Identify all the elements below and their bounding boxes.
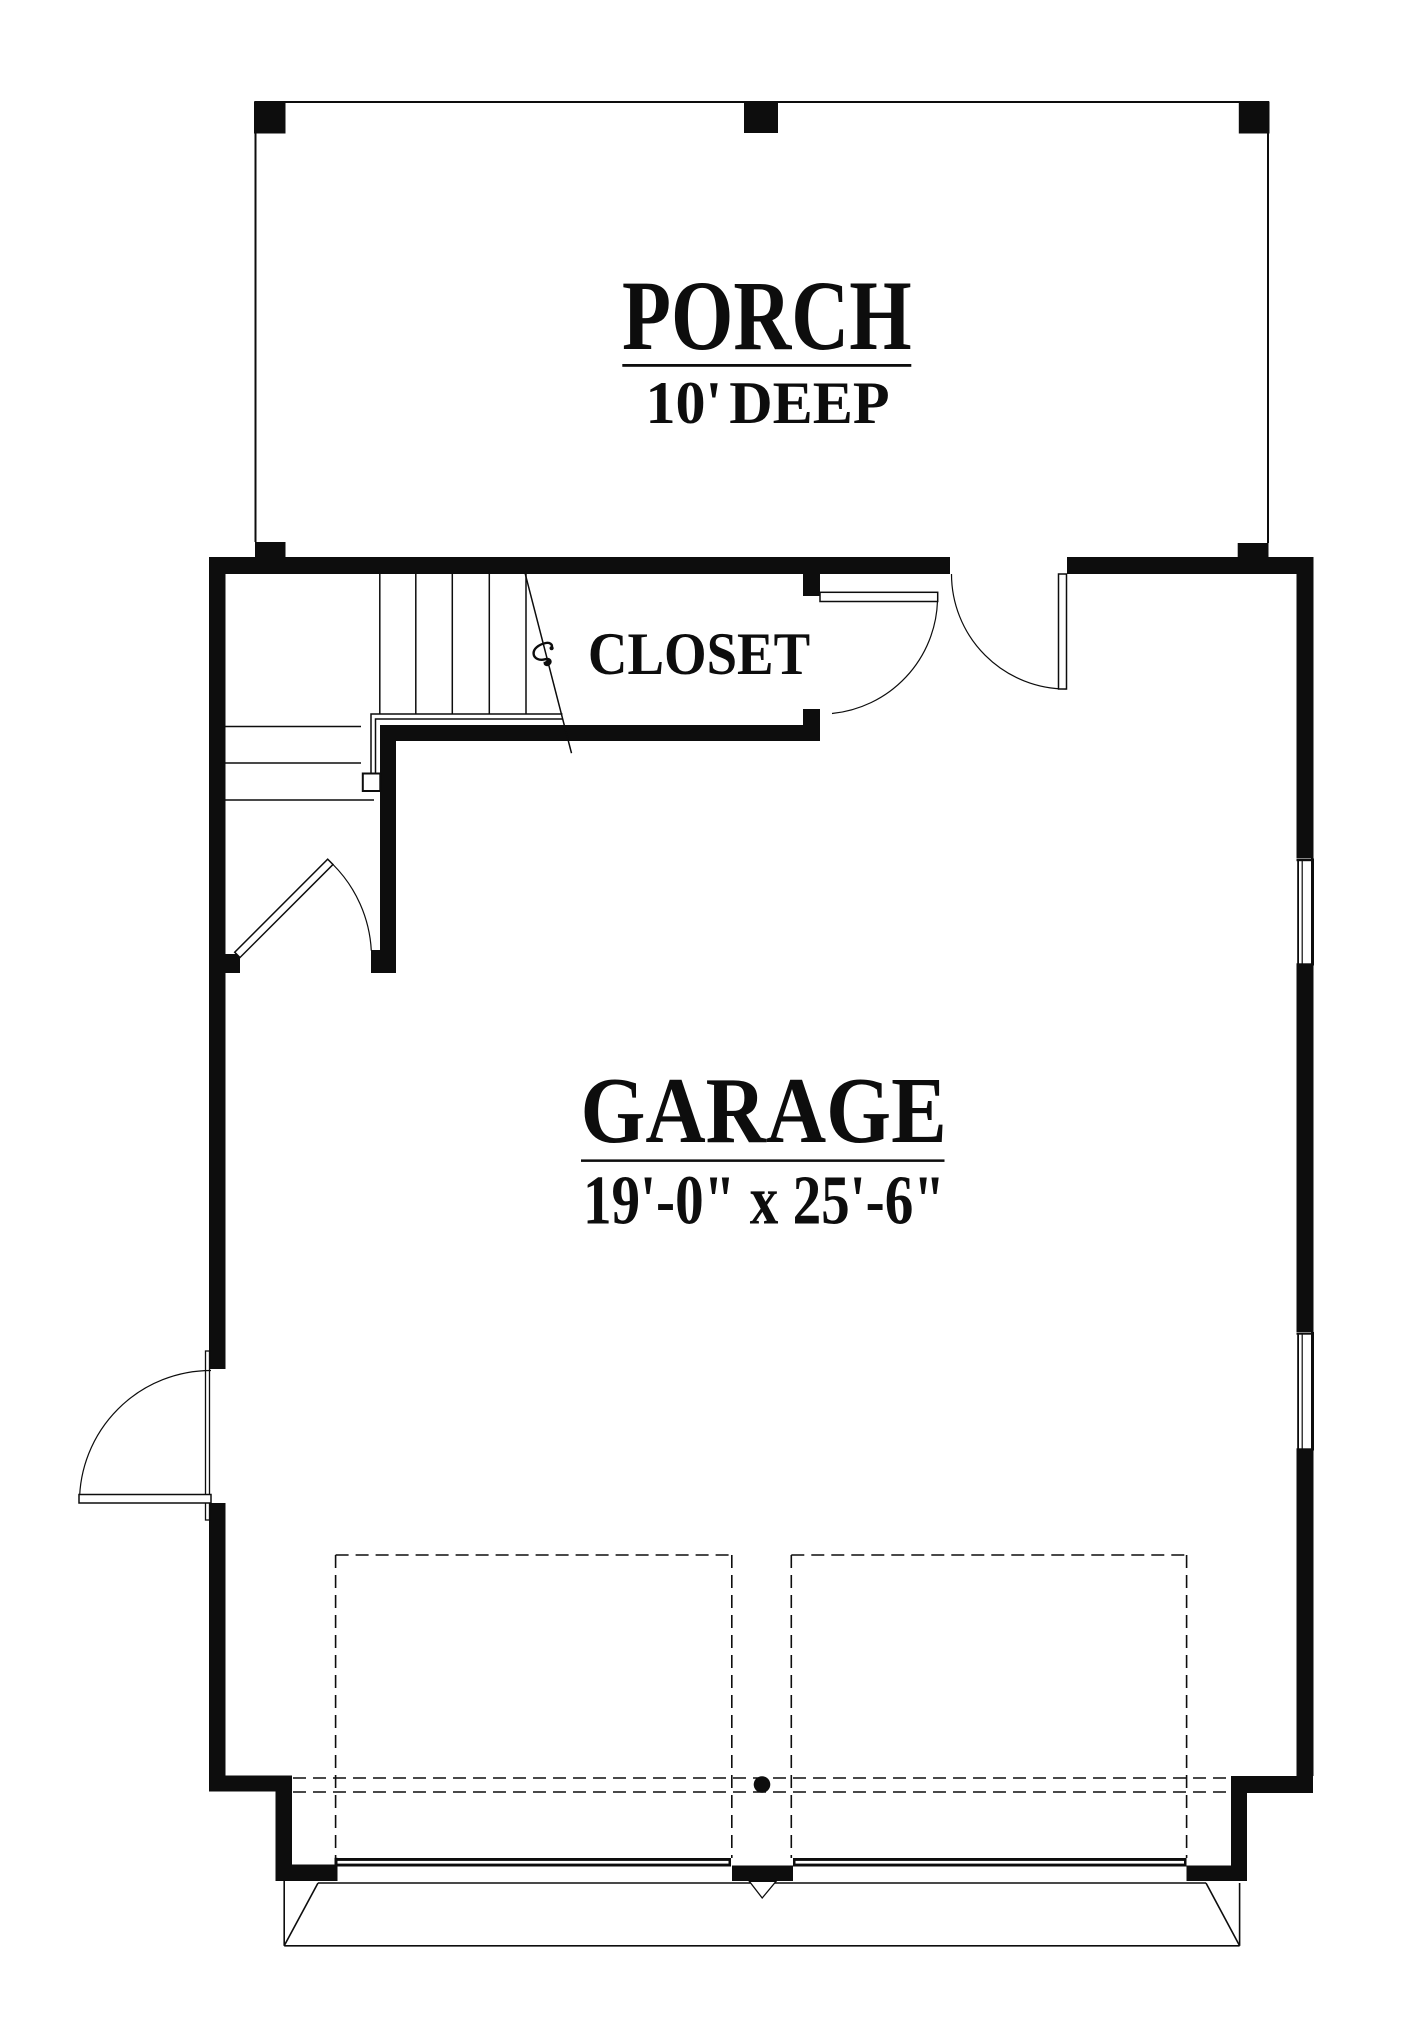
svg-text:PORCH: PORCH — [622, 260, 912, 371]
svg-text:GARAGE: GARAGE — [580, 1060, 946, 1164]
svg-text:CLOSET: CLOSET — [588, 622, 810, 688]
svg-text:10' DEEP: 10' DEEP — [645, 369, 889, 436]
svg-text:19'-0" x 25'-6": 19'-0" x 25'-6" — [583, 1161, 945, 1239]
